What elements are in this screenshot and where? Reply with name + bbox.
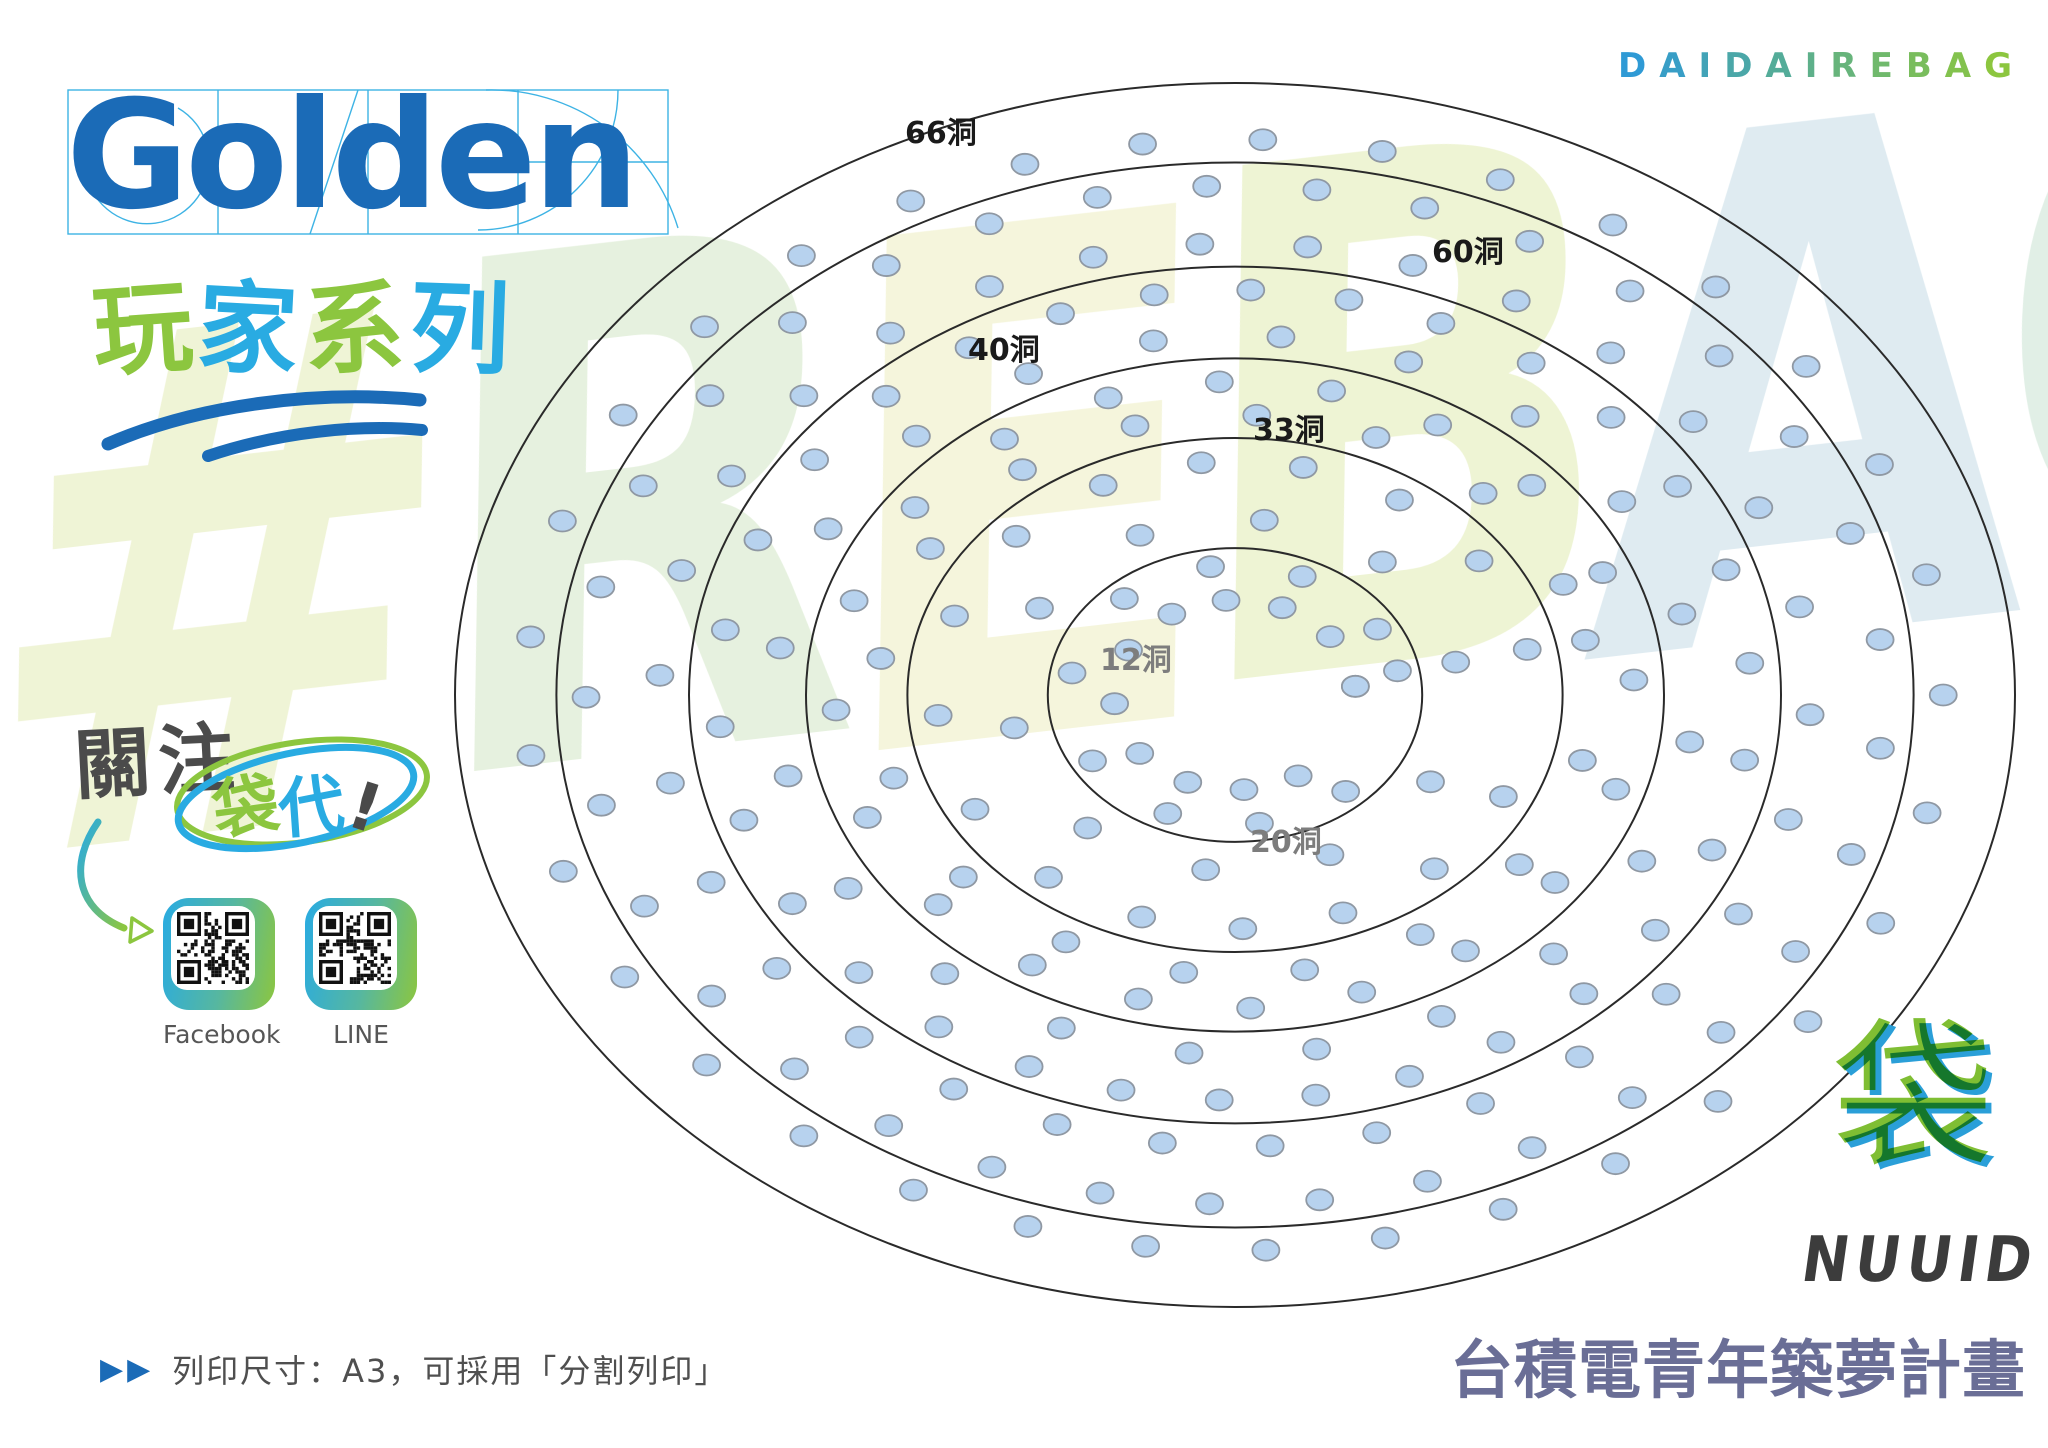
- line-qr-card: LINE: [305, 898, 417, 1049]
- golden-logo: Golden: [58, 78, 683, 248]
- ring-hole-count-label: 12洞: [1100, 643, 1172, 678]
- line-qr-label: LINE: [305, 1020, 417, 1049]
- brand-letter: A: [1765, 46, 1791, 86]
- underline-swoosh-icon: [90, 382, 470, 462]
- circled-brand: 袋代!: [168, 732, 438, 858]
- bag-glyph-blue: 袋: [1838, 1023, 2000, 1185]
- ring-hole-count-label: 33洞: [1253, 413, 1325, 448]
- facebook-qr-frame: [163, 898, 275, 1010]
- brand-letter: R: [1830, 46, 1856, 86]
- brand-letter: A: [1659, 46, 1685, 86]
- note-marker-icon: ▶▶: [100, 1352, 154, 1387]
- print-note-text: 列印尺寸：A3，可採用「分割列印」: [172, 1346, 728, 1392]
- daidairebag-brand: DAIDAIREBAG: [1605, 46, 2012, 86]
- campaign-title: 台積電青年築夢計畫: [1450, 1320, 2026, 1411]
- print-note: ▶▶ 列印尺寸：A3，可採用「分割列印」: [100, 1346, 728, 1392]
- brand-letter: D: [1618, 46, 1646, 86]
- golden-logo-text: Golden: [66, 74, 635, 239]
- brand-letter: G: [1984, 46, 2012, 86]
- ring-hole-count-label: 66洞: [905, 116, 977, 151]
- facebook-qr-icon: [177, 912, 249, 984]
- poster-page: #REBAG 66洞60洞40洞33洞20洞12洞 Golden 玩家系列 DA…: [0, 0, 2048, 1448]
- nuuid-logo-text: NUUID: [1765, 1224, 2048, 1297]
- styled-character: 代: [275, 752, 348, 852]
- styled-character: 玩: [87, 244, 203, 396]
- brand-letter: D: [1724, 46, 1752, 86]
- qr-code-row: Facebook LINE: [163, 898, 417, 1049]
- circled-brand-text: 袋代!: [212, 754, 380, 850]
- ring-hole-count-label: 40洞: [968, 333, 1040, 368]
- styled-character: 家: [194, 245, 307, 395]
- brand-letter: I: [1805, 46, 1818, 86]
- styled-character: 袋: [206, 750, 285, 854]
- brand-letter: E: [1870, 46, 1893, 86]
- ring-hole-count-label: 60洞: [1432, 235, 1504, 270]
- facebook-qr-label: Facebook: [163, 1020, 275, 1049]
- brand-letter: B: [1906, 46, 1932, 86]
- brand-letter: A: [1945, 46, 1971, 86]
- facebook-qr-card: Facebook: [163, 898, 275, 1049]
- ring-hole-count-label: 20洞: [1250, 825, 1322, 860]
- brand-letter: I: [1699, 46, 1712, 86]
- styled-character: 列: [408, 246, 519, 395]
- styled-character: 系: [302, 246, 413, 395]
- series-title: 玩家系列: [92, 248, 516, 393]
- line-qr-icon: [319, 912, 391, 984]
- line-qr-frame: [305, 898, 417, 1010]
